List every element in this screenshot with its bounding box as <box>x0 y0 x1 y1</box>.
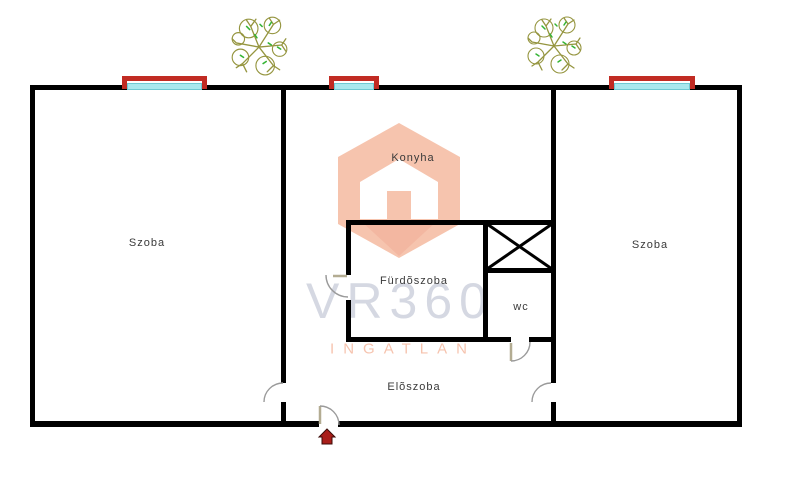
room-label-wc: wc <box>513 301 528 313</box>
room-label-eloszoba: Elõszoba <box>387 381 440 393</box>
labels-layer: Szoba Konyha Szoba Fürdõszoba wc Elõszob… <box>0 0 800 490</box>
room-label-furdoszoba: Fürdõszoba <box>380 275 448 287</box>
room-label-szoba-right: Szoba <box>632 239 668 251</box>
room-label-szoba-left: Szoba <box>129 237 165 249</box>
room-label-konyha: Konyha <box>391 152 434 164</box>
floorplan-canvas: VR360 INGATLAN <box>0 0 800 490</box>
